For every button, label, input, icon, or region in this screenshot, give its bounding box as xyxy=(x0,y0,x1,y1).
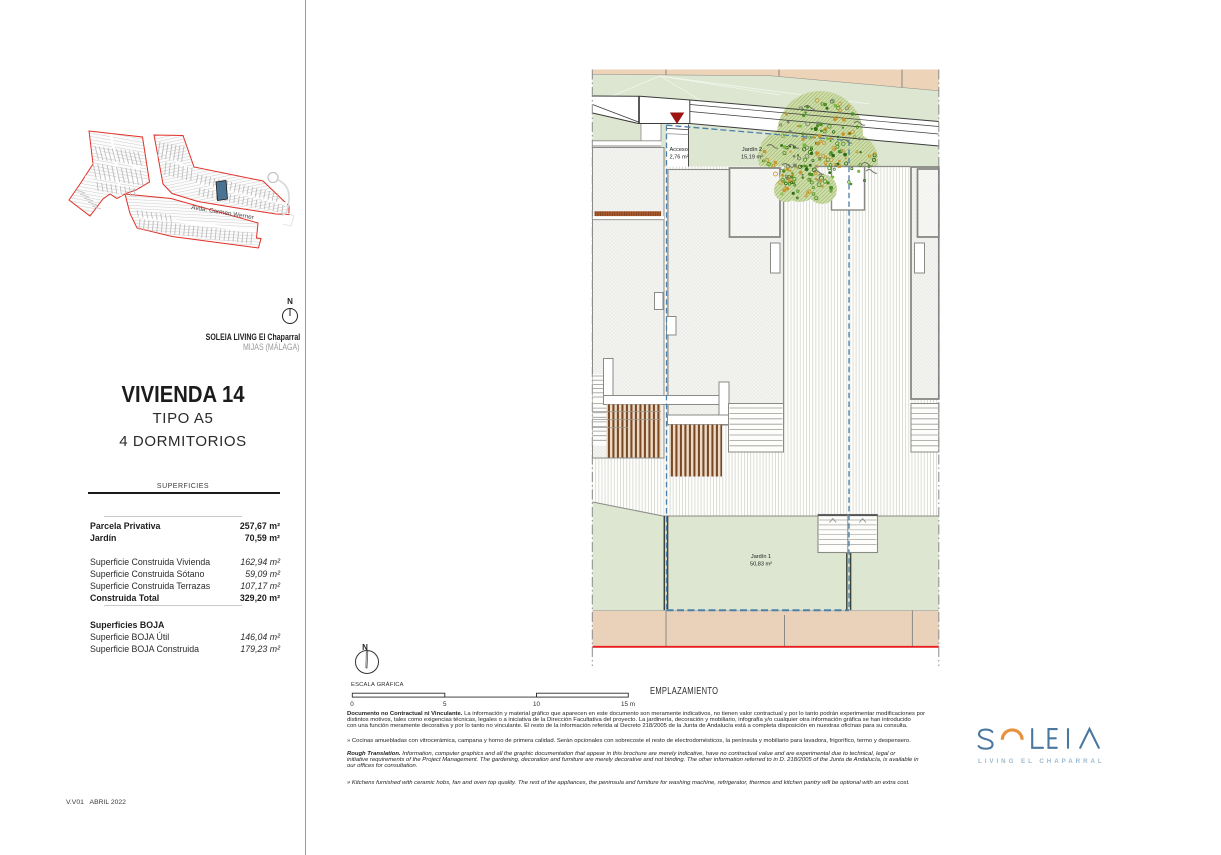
svg-text:5: 5 xyxy=(443,701,447,708)
svg-text:Jardín 2: Jardín 2 xyxy=(742,147,762,153)
svg-text:15,19 m²: 15,19 m² xyxy=(741,155,763,161)
svg-text:15 m: 15 m xyxy=(621,701,635,708)
svg-text:N: N xyxy=(287,297,293,306)
svg-text:10: 10 xyxy=(533,701,541,708)
svg-text:Jardín 1: Jardín 1 xyxy=(751,554,771,560)
svg-text:50,83 m²: 50,83 m² xyxy=(750,562,772,568)
svg-text:Acceso: Acceso xyxy=(670,147,688,153)
svg-text:0: 0 xyxy=(350,701,354,708)
svg-text:2,76 m²: 2,76 m² xyxy=(670,155,689,161)
